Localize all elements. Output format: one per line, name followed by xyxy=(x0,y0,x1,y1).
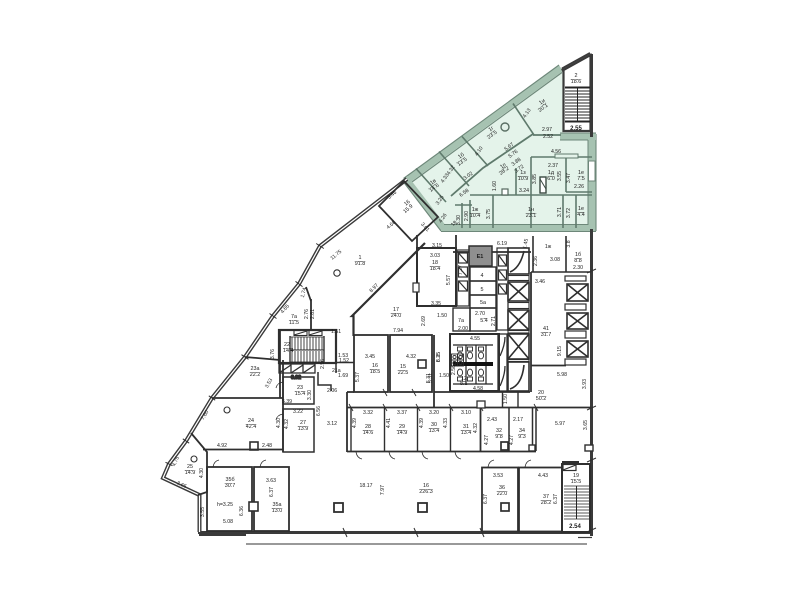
svg-text:8.25: 8.25 xyxy=(436,352,442,362)
svg-text:3.24: 3.24 xyxy=(519,188,529,194)
svg-text:7.94: 7.94 xyxy=(393,328,403,334)
svg-text:14.9: 14.9 xyxy=(397,430,408,436)
svg-text:2.17: 2.17 xyxy=(513,417,523,423)
svg-text:5.57: 5.57 xyxy=(446,275,452,285)
svg-text:2.26: 2.26 xyxy=(574,184,584,190)
svg-text:2.43: 2.43 xyxy=(487,417,497,423)
svg-text:4.92: 4.92 xyxy=(217,443,227,449)
svg-text:1.51: 1.51 xyxy=(331,329,341,335)
svg-text:2.56: 2.56 xyxy=(320,359,326,369)
svg-text:4.27: 4.27 xyxy=(509,435,515,445)
svg-text:9.3: 9.3 xyxy=(518,434,526,440)
svg-text:4.32: 4.32 xyxy=(284,419,290,429)
svg-text:7.97: 7.97 xyxy=(380,485,386,495)
svg-text:2.55: 2.55 xyxy=(570,126,582,132)
svg-text:3.12: 3.12 xyxy=(327,421,337,427)
svg-text:2.81: 2.81 xyxy=(310,309,316,319)
svg-text:22.2: 22.2 xyxy=(250,372,261,378)
svg-text:5.08: 5.08 xyxy=(223,519,233,525)
svg-text:4.55: 4.55 xyxy=(470,336,480,342)
svg-text:13.4: 13.4 xyxy=(429,428,440,434)
svg-text:13.4: 13.4 xyxy=(461,430,472,436)
svg-text:9.8: 9.8 xyxy=(495,434,503,440)
svg-text:15.4: 15.4 xyxy=(295,391,306,397)
svg-text:3.71: 3.71 xyxy=(557,207,563,217)
svg-text:24.0: 24.0 xyxy=(391,313,402,319)
svg-text:4.41: 4.41 xyxy=(386,418,392,428)
svg-text:5: 5 xyxy=(481,287,484,293)
svg-text:3.30: 3.30 xyxy=(307,390,313,400)
svg-text:3.85: 3.85 xyxy=(532,174,538,184)
svg-text:11.5: 11.5 xyxy=(289,320,299,326)
svg-text:Е1: Е1 xyxy=(477,254,484,260)
svg-text:1.50: 1.50 xyxy=(439,373,449,379)
svg-text:2.58: 2.58 xyxy=(451,365,457,375)
svg-text:3.32: 3.32 xyxy=(363,410,373,416)
svg-text:h=3.25: h=3.25 xyxy=(217,502,233,508)
svg-text:3.53: 3.53 xyxy=(493,473,503,479)
svg-text:2.00: 2.00 xyxy=(458,326,468,332)
svg-text:7a: 7a xyxy=(458,318,464,324)
svg-text:2.48: 2.48 xyxy=(262,443,272,449)
svg-text:50.2: 50.2 xyxy=(536,396,547,402)
svg-text:5.37: 5.37 xyxy=(355,372,361,382)
svg-text:3.76: 3.76 xyxy=(270,349,276,359)
svg-text:6.37: 6.37 xyxy=(483,494,489,504)
svg-text:4.56: 4.56 xyxy=(551,149,561,155)
svg-text:2.36: 2.36 xyxy=(533,256,539,266)
svg-text:2.69: 2.69 xyxy=(421,316,427,326)
svg-text:13.0: 13.0 xyxy=(272,508,283,514)
svg-text:5a: 5a xyxy=(480,300,486,306)
svg-text:4.39: 4.39 xyxy=(419,418,425,428)
svg-text:6.37: 6.37 xyxy=(269,487,275,497)
svg-text:3.93: 3.93 xyxy=(582,379,588,389)
svg-text:3.15: 3.15 xyxy=(432,243,442,249)
svg-text:18.17: 18.17 xyxy=(360,483,373,489)
svg-text:1.50: 1.50 xyxy=(503,394,509,404)
svg-text:3.55: 3.55 xyxy=(200,507,206,517)
svg-text:18.6: 18.6 xyxy=(571,79,582,85)
svg-text:2.52: 2.52 xyxy=(543,134,553,140)
svg-text:4.4: 4.4 xyxy=(577,212,585,218)
svg-text:22.5: 22.5 xyxy=(398,370,409,376)
svg-text:31.7: 31.7 xyxy=(541,332,552,338)
svg-text:3.45: 3.45 xyxy=(365,354,375,360)
svg-text:3.72: 3.72 xyxy=(566,208,572,218)
svg-text:3.8: 3.8 xyxy=(566,240,572,247)
svg-text:3.92: 3.92 xyxy=(291,375,301,381)
svg-text:6.0: 6.0 xyxy=(547,176,555,182)
svg-text:9.15: 9.15 xyxy=(557,346,563,356)
svg-text:28.2: 28.2 xyxy=(541,500,552,506)
svg-text:2.97: 2.97 xyxy=(542,127,552,133)
svg-text:8.1: 8.1 xyxy=(460,381,468,387)
svg-text:4.43: 4.43 xyxy=(538,473,548,479)
svg-text:4: 4 xyxy=(481,273,484,279)
svg-text:4.39: 4.39 xyxy=(352,418,358,428)
svg-text:15.5: 15.5 xyxy=(571,479,582,485)
svg-text:2.90: 2.90 xyxy=(464,211,470,221)
svg-text:30.7: 30.7 xyxy=(225,483,236,489)
svg-text:1ж: 1ж xyxy=(545,244,552,250)
svg-text:14.9: 14.9 xyxy=(185,470,196,476)
svg-text:14.4: 14.4 xyxy=(283,348,294,354)
svg-text:2.30: 2.30 xyxy=(573,265,583,271)
svg-text:3.37: 3.37 xyxy=(397,410,407,416)
svg-text:3.55: 3.55 xyxy=(557,171,563,181)
svg-text:2.06: 2.06 xyxy=(327,388,337,394)
svg-text:4.33: 4.33 xyxy=(443,418,449,428)
svg-text:4.32: 4.32 xyxy=(473,423,479,433)
svg-text:13.9: 13.9 xyxy=(298,426,309,432)
svg-text:6.36: 6.36 xyxy=(239,506,245,516)
svg-text:3.10: 3.10 xyxy=(461,410,471,416)
svg-text:2.37: 2.37 xyxy=(548,163,558,169)
svg-text:3.08: 3.08 xyxy=(550,257,560,263)
svg-text:6.37: 6.37 xyxy=(553,494,559,504)
svg-text:6.56: 6.56 xyxy=(316,406,322,416)
svg-text:1.52: 1.52 xyxy=(339,358,349,364)
svg-text:3.75: 3.75 xyxy=(486,209,492,219)
svg-text:14.6: 14.6 xyxy=(363,430,374,436)
svg-text:3.22: 3.22 xyxy=(293,409,303,415)
svg-text:23.1: 23.1 xyxy=(526,213,537,219)
svg-text:4.27: 4.27 xyxy=(484,435,490,445)
svg-text:5.98: 5.98 xyxy=(557,372,567,378)
svg-text:5.4: 5.4 xyxy=(480,318,488,324)
svg-text:3.03: 3.03 xyxy=(430,253,440,259)
svg-text:22.0: 22.0 xyxy=(497,491,508,497)
svg-text:4.32: 4.32 xyxy=(406,354,416,360)
svg-text:4.30: 4.30 xyxy=(199,468,205,478)
svg-text:3.65: 3.65 xyxy=(583,420,589,430)
svg-text:2.54: 2.54 xyxy=(569,524,581,530)
svg-text:10.9: 10.9 xyxy=(518,176,529,182)
svg-text:226.3: 226.3 xyxy=(419,489,433,495)
svg-text:7.5: 7.5 xyxy=(577,176,585,182)
svg-text:42.4: 42.4 xyxy=(246,424,257,430)
svg-text:3.46: 3.46 xyxy=(535,279,545,285)
svg-text:1.60: 1.60 xyxy=(492,181,498,191)
svg-text:5.39: 5.39 xyxy=(282,399,292,405)
svg-text:2.71: 2.71 xyxy=(491,316,497,326)
svg-text:10.4: 10.4 xyxy=(470,213,481,219)
svg-text:1.50: 1.50 xyxy=(437,313,447,319)
svg-text:18.5: 18.5 xyxy=(370,369,381,375)
svg-text:18.4: 18.4 xyxy=(430,266,441,272)
svg-text:5.97: 5.97 xyxy=(555,421,565,427)
svg-text:8.8: 8.8 xyxy=(574,258,582,264)
svg-text:1.69: 1.69 xyxy=(338,373,348,379)
svg-text:3.47: 3.47 xyxy=(566,173,572,183)
svg-text:6.19: 6.19 xyxy=(497,241,507,247)
svg-text:3.20: 3.20 xyxy=(429,410,439,416)
svg-text:3.63: 3.63 xyxy=(266,478,276,484)
svg-text:3.35: 3.35 xyxy=(431,301,441,307)
svg-text:4.30: 4.30 xyxy=(276,418,282,428)
svg-text:91.8: 91.8 xyxy=(355,261,366,267)
svg-text:2.70: 2.70 xyxy=(475,311,485,317)
